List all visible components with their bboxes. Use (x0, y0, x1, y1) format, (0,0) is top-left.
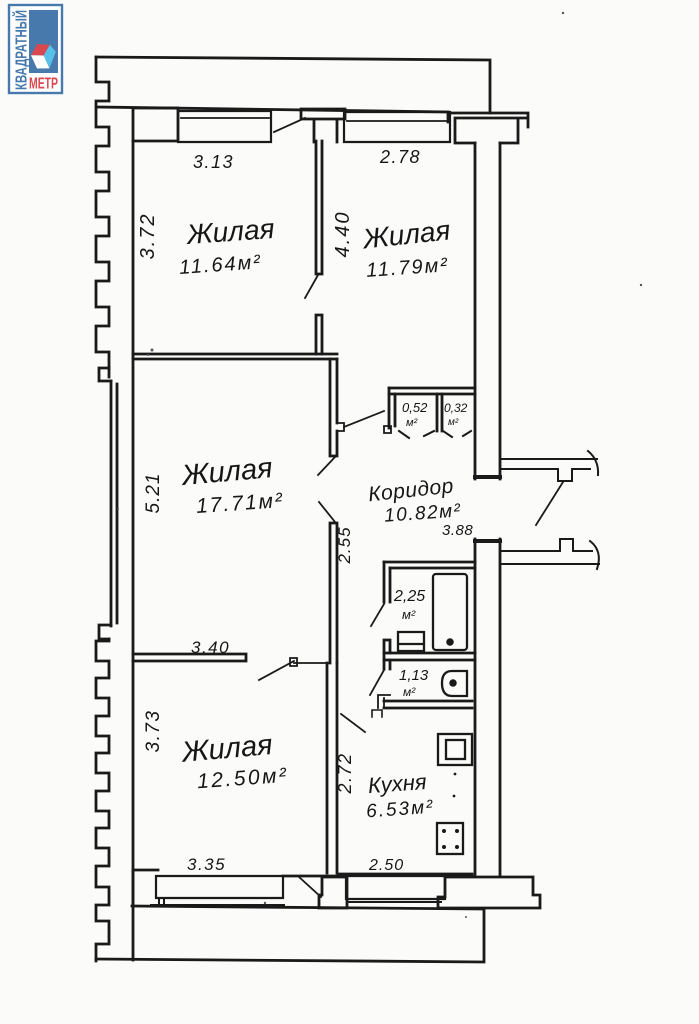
svg-text:Жилая: Жилая (184, 213, 276, 250)
svg-text:2.78: 2.78 (379, 147, 421, 167)
svg-text:МЕТР: МЕТР (29, 76, 58, 93)
svg-text:4.40: 4.40 (332, 211, 354, 258)
svg-text:м²: м² (448, 417, 459, 428)
svg-text:2.55: 2.55 (335, 526, 354, 564)
svg-text:м²: м² (403, 685, 416, 699)
svg-text:2,25: 2,25 (393, 588, 425, 605)
svg-text:2.72: 2.72 (335, 752, 355, 794)
svg-text:0,32: 0,32 (444, 401, 468, 415)
svg-text:3.35: 3.35 (187, 855, 226, 874)
svg-text:3.73: 3.73 (143, 710, 164, 753)
svg-text:3.72: 3.72 (137, 213, 159, 260)
svg-text:1,13: 1,13 (399, 667, 429, 684)
svg-text:м²: м² (406, 417, 418, 429)
svg-text:2.50: 2.50 (368, 857, 404, 874)
svg-text:Кухня: Кухня (367, 769, 427, 798)
svg-text:3.13: 3.13 (193, 152, 234, 172)
svg-text:м²: м² (402, 607, 416, 622)
svg-text:КВАДРАТНЫЙ: КВАДРАТНЫЙ (13, 10, 31, 90)
svg-text:3.88: 3.88 (442, 522, 473, 539)
svg-text:0,52: 0,52 (402, 400, 428, 415)
svg-text:3.40: 3.40 (191, 638, 230, 657)
svg-text:5.21: 5.21 (143, 473, 164, 514)
